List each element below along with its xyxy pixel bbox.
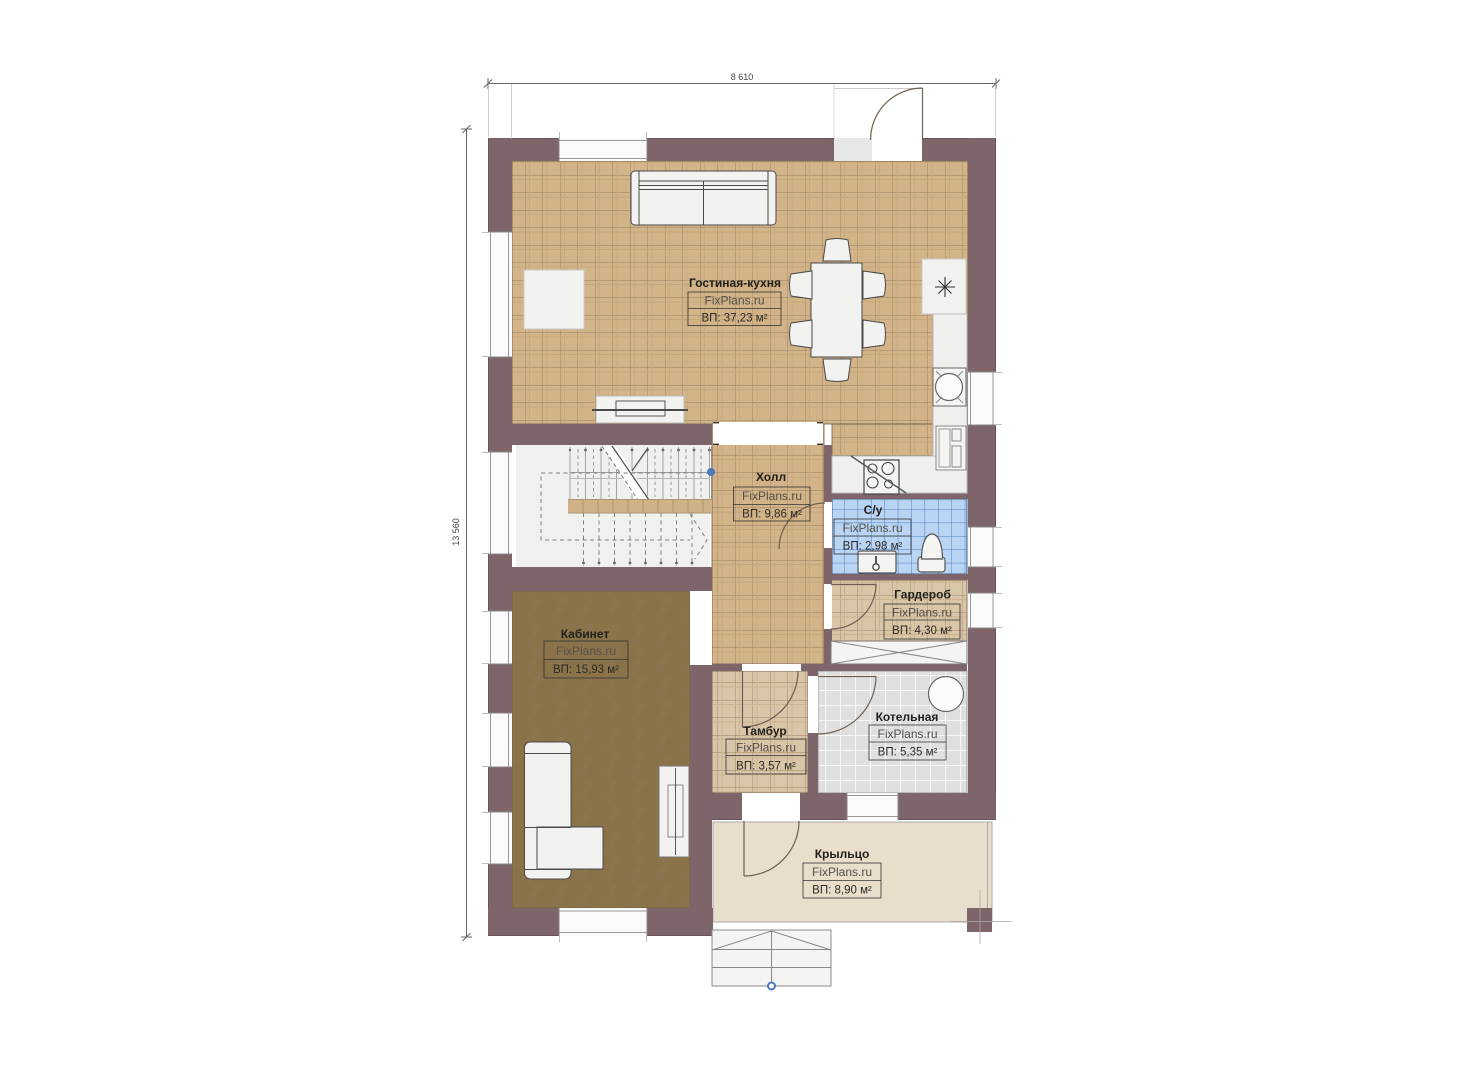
svg-text:FixPlans.ru: FixPlans.ru xyxy=(704,294,764,308)
svg-text:FixPlans.ru: FixPlans.ru xyxy=(892,606,952,620)
svg-text:Холл: Холл xyxy=(756,470,786,484)
svg-text:Крыльцо: Крыльцо xyxy=(815,847,870,861)
svg-text:Кабинет: Кабинет xyxy=(561,627,610,641)
svg-text:FixPlans.ru: FixPlans.ru xyxy=(842,521,902,535)
svg-text:ВП: 37,23 м²: ВП: 37,23 м² xyxy=(701,313,767,325)
svg-text:ВП: 2,98 м²: ВП: 2,98 м² xyxy=(843,541,903,553)
svg-text:ВП: 4,30 м²: ВП: 4,30 м² xyxy=(892,625,952,637)
svg-text:FixPlans.ru: FixPlans.ru xyxy=(812,865,872,879)
svg-text:С/у: С/у xyxy=(864,503,883,517)
svg-text:FixPlans.ru: FixPlans.ru xyxy=(877,727,937,741)
svg-text:FixPlans.ru: FixPlans.ru xyxy=(556,644,616,658)
svg-text:Гостиная-кухня: Гостиная-кухня xyxy=(689,276,781,290)
svg-text:Котельная: Котельная xyxy=(876,710,939,724)
svg-text:ВП: 9,86 м²: ВП: 9,86 м² xyxy=(742,509,802,521)
svg-text:Тамбур: Тамбур xyxy=(743,724,787,738)
svg-text:ВП: 3,57 м²: ВП: 3,57 м² xyxy=(736,761,796,773)
svg-text:ВП: 8,90 м²: ВП: 8,90 м² xyxy=(812,885,872,897)
svg-text:Гардероб: Гардероб xyxy=(894,588,951,602)
svg-text:FixPlans.ru: FixPlans.ru xyxy=(736,741,796,755)
svg-text:8 610: 8 610 xyxy=(731,72,754,82)
svg-text:ВП: 15,93 м²: ВП: 15,93 м² xyxy=(553,664,619,676)
svg-text:FixPlans.ru: FixPlans.ru xyxy=(742,489,802,503)
svg-text:13 560: 13 560 xyxy=(451,518,461,546)
svg-text:ВП: 5,35 м²: ВП: 5,35 м² xyxy=(878,747,938,759)
